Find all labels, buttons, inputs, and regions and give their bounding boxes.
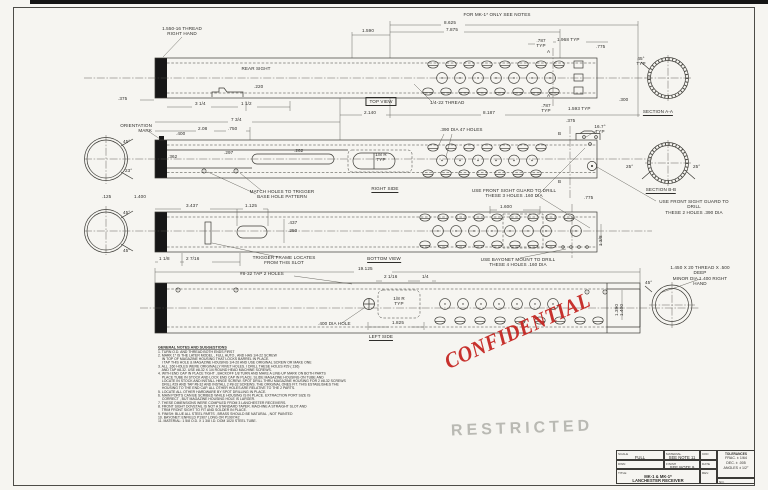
- dim-minor-rotated: 1.390 1.400: [614, 304, 625, 316]
- material-cell: MATERIAL SEE NOTE 11: [664, 450, 700, 460]
- dim-1590: 1.590: [362, 28, 374, 33]
- dim-775-mid: .775: [584, 195, 593, 200]
- dim-437: .437: [288, 220, 297, 225]
- dim-1-12: 1 1/2: [241, 101, 252, 106]
- dim-300: .300: [619, 97, 628, 102]
- date-label: DATE: [701, 461, 716, 466]
- title-cell: TITLE MK-1 & MK-1* LANCHESTER RECEIVER: [616, 469, 700, 484]
- section-arrow-b-bottom: B: [558, 179, 561, 184]
- dim-8187: 8.187: [483, 110, 495, 115]
- section-arrow-a-top: A: [547, 49, 550, 54]
- dim-1968-typ: 1.968 TYP: [557, 37, 580, 42]
- ckd-label: CKD: [701, 451, 716, 456]
- dim-7875: 7.875: [446, 27, 458, 32]
- r18-typ-right-side: 1/8 R TYP: [375, 152, 386, 163]
- dim-787-typ-top: .787 TYP: [536, 38, 545, 49]
- ckd-cell: CKD: [700, 450, 717, 460]
- dim-125: .125: [102, 194, 111, 199]
- title-block: SCALE FULL MATERIAL SEE NOTE 11 CKD DWN …: [616, 450, 755, 484]
- dim-262: .262: [294, 148, 303, 153]
- deg23-circle1: 23°: [125, 168, 132, 173]
- dim-8625: 8.625: [444, 20, 456, 25]
- section-arrow-a-bottom: A: [547, 93, 550, 98]
- dim-1593-typ: 1.593 TYP: [568, 106, 591, 111]
- dim-1-18: 1 1/8: [159, 256, 170, 261]
- fsg2-callout: USE FRONT SIGHT GUARD TO DRILL THESE 2 H…: [657, 199, 731, 215]
- dim-750: .750: [228, 126, 237, 131]
- deg45-circle1: 45°: [123, 139, 130, 144]
- section-bb-label: SECTION B-B: [646, 187, 676, 194]
- tolerance-angles: ANGLES ± 1/2°: [718, 466, 754, 471]
- general-notes-title: GENERAL NOTES AND SUGGESTIONS: [158, 345, 448, 350]
- hole400-callout: .400 DIA HOLE: [318, 321, 351, 326]
- match-holes-callout: MATCH HOLES TO TRIGGER BASE HOLE PATTERN: [250, 189, 315, 200]
- section-arrow-b-top: B: [558, 131, 561, 136]
- dim-250: .250: [288, 228, 297, 233]
- date-cell: DATE: [700, 460, 717, 469]
- deg45-circle2a: 45°: [123, 210, 130, 215]
- dim-208: 2.08: [198, 126, 207, 131]
- dim-787-typ-bottom: .787 TYP: [541, 103, 550, 114]
- dwn-label: DWN: [617, 461, 663, 466]
- dim-3-14: 3 1/4: [195, 101, 206, 106]
- dim-1400: 1.400: [134, 194, 146, 199]
- dim-400: .400: [176, 131, 185, 136]
- dim-2-716: 2 7/16: [186, 256, 199, 261]
- dim-19125: 19.125: [358, 266, 373, 271]
- drawing-title-line2: LANCHESTER RECEIVER: [617, 479, 699, 484]
- number-label: NO.: [718, 479, 754, 484]
- rear-sight-label: REAR SIGHT: [241, 66, 270, 71]
- dim-14: 1/4: [422, 274, 429, 279]
- bottom-view-label: BOTTOM VIEW: [367, 256, 401, 263]
- dwn-cell: DWN: [616, 460, 664, 469]
- dim-1825: 1.825: [392, 320, 404, 325]
- holes47-callout: .390 DIA 47 HOLES: [440, 127, 483, 132]
- orientation-mark-callout: ORIENTATION MARK: [120, 123, 152, 134]
- dimension-lines: [140, 21, 700, 330]
- deg25-left: 25°: [626, 164, 633, 169]
- right-side-label: RIGHT SIDE: [371, 186, 398, 193]
- rev-cell: REV.: [700, 469, 717, 484]
- dim-3437: 3.437: [186, 203, 198, 208]
- trigger-frame-callout: TRIGGER FRAME LOCATES FROM THIS SLOT: [253, 255, 316, 266]
- dim-220: .220: [254, 84, 263, 89]
- mk1-note-callout: FOR MK-1* ONLY SEE NOTES: [463, 12, 530, 17]
- quarter22-callout: 1/4-22 THREAD: [430, 100, 464, 105]
- deg167-callout: 16.7° TYP: [594, 124, 605, 135]
- top-view-label: TOP VIEW: [365, 97, 396, 106]
- deg25-right: 25°: [693, 164, 700, 169]
- thread-right-callout: 1.450 X 20 THREAD X .500 DEEP MINOR DIA …: [666, 265, 734, 287]
- dim-1600: 1.600: [500, 204, 512, 209]
- dim-7-34: 7 3/4: [231, 117, 242, 122]
- deg45-circle2b: 45°: [123, 248, 130, 253]
- dim-2-116: 2 1/16: [384, 274, 397, 279]
- dim-375-left: .375: [118, 96, 127, 101]
- dim-id-rotated: 1 3/8: [598, 235, 603, 246]
- tolerances-cell: TOLERANCES FRAC. ± 1/64 DEC. ± .005 ANGL…: [717, 450, 755, 478]
- scale-cell: SCALE FULL: [616, 450, 664, 460]
- finish-cell: FINISH SEE NOTE 9: [664, 460, 700, 469]
- section-aa-label: SECTION A-A: [643, 109, 673, 116]
- rev-label: REV.: [701, 470, 716, 475]
- bayonet-callout: USE BAYONET MOUNT TO DRILL THESE 4 HOLES…: [481, 257, 556, 268]
- fsg3-callout: USE FRONT SIGHT GUARD TO DRILL THESE 3 H…: [472, 188, 556, 199]
- dim-362: .362: [168, 154, 177, 159]
- dim-1125: 1.125: [245, 203, 257, 208]
- general-notes-body: 1. TURN O.D. AND THREAD BOTH ENDS FIRST …: [158, 350, 448, 423]
- dim-775-top: .775: [596, 44, 605, 49]
- thread-end-bands: [155, 58, 167, 333]
- thread-end-callout: 1.550-16 THREAD RIGHT HAND: [162, 26, 202, 37]
- deg45-typ-callout: 45° TYP: [636, 56, 645, 67]
- dim-2140: 2.140: [364, 110, 376, 115]
- drawing-sheet: 1.550-16 THREAD RIGHT HAND FOR MK-1* ONL…: [0, 0, 768, 490]
- left-side-label: LEFT SIDE: [369, 334, 393, 341]
- number-cell: NO.: [717, 478, 755, 484]
- general-notes: GENERAL NOTES AND SUGGESTIONS 1. TURN O.…: [158, 345, 448, 423]
- dim-297: .297: [224, 150, 233, 155]
- tap2-callout: #8-32 TAP 2 HOLES: [240, 271, 284, 276]
- dim-375-b: .375: [566, 118, 575, 123]
- r18-typ-left-side: 1/8 R TYP: [393, 296, 404, 307]
- deg45-thread-end: 45°: [645, 280, 652, 285]
